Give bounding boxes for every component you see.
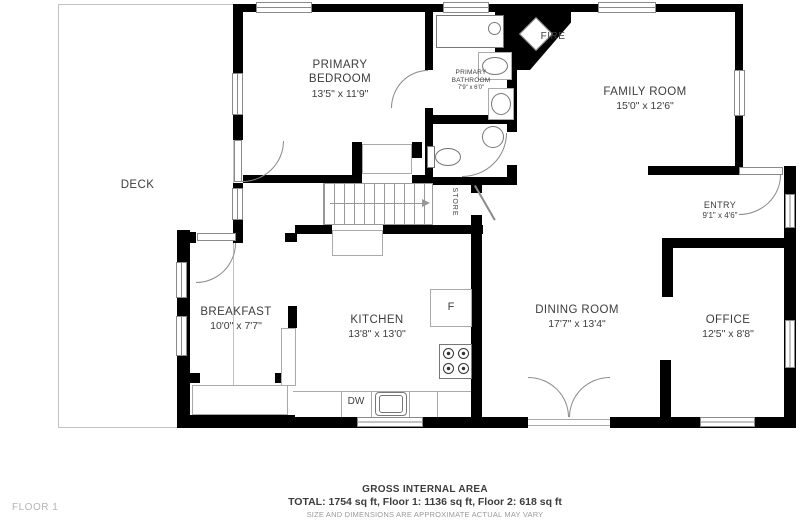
room-dims: 10'0" x 7'7" bbox=[186, 320, 286, 333]
room-name: PRIMARY BEDROOM bbox=[290, 58, 390, 87]
room-dims: 13'5" x 11'9" bbox=[290, 88, 390, 101]
gross-internal-area-title: GROSS INTERNAL AREA bbox=[80, 484, 770, 495]
stair-arrow-icon bbox=[422, 199, 430, 207]
room-name: ENTRY bbox=[680, 200, 760, 211]
window bbox=[734, 70, 745, 116]
room-name: KITCHEN bbox=[327, 313, 427, 327]
room-label-dining-room: DINING ROOM 17'7" x 13'4" bbox=[517, 303, 637, 332]
room-name: OFFICE bbox=[678, 313, 778, 327]
powder-sink bbox=[482, 126, 504, 148]
room-name: DINING ROOM bbox=[517, 303, 637, 317]
under-stair-cupboard bbox=[332, 230, 383, 256]
room-label-entry: ENTRY 9'1" x 4'6" bbox=[680, 200, 760, 221]
counter-divider bbox=[437, 391, 438, 417]
room-label-kitchen: KITCHEN 13'8" x 13'0" bbox=[327, 313, 427, 342]
burner-icon bbox=[443, 363, 454, 374]
wall-bathroom-left-upper bbox=[425, 12, 433, 70]
wall-bedroom-left-upper bbox=[233, 4, 243, 140]
room-label-breakfast: BREAKFAST 10'0" x 7'7" bbox=[186, 305, 286, 334]
wall-breakfast-top-left bbox=[177, 232, 196, 243]
wall-step-stub bbox=[285, 233, 297, 242]
room-name: DECK bbox=[100, 178, 175, 192]
room-name: BREAKFAST bbox=[186, 305, 286, 319]
door-arc-french-right bbox=[569, 377, 610, 417]
wall-kitchen-breakfast-stub bbox=[288, 306, 297, 328]
fridge-label: F bbox=[431, 301, 471, 315]
staircase bbox=[323, 183, 433, 225]
room-name: FAMILY ROOM bbox=[585, 85, 705, 99]
kitchen-sink-basin bbox=[379, 395, 403, 413]
wall-entry-top bbox=[648, 166, 743, 175]
room-label-office: OFFICE 12'5" x 8'8" bbox=[678, 313, 778, 342]
wall-bay-stub-left bbox=[186, 373, 200, 383]
footer: GROSS INTERNAL AREA TOTAL: 1754 sq ft, F… bbox=[80, 484, 770, 519]
window bbox=[785, 194, 795, 228]
toilet-bowl bbox=[435, 148, 461, 166]
wall-kitchen-right bbox=[471, 215, 482, 428]
door-arc-french-left bbox=[528, 377, 569, 417]
burner-icon bbox=[458, 348, 469, 359]
door-arc-bathroom bbox=[391, 70, 428, 108]
fireplace-label: FIRE bbox=[531, 31, 575, 44]
window bbox=[232, 188, 243, 220]
counter-divider bbox=[409, 391, 410, 417]
deck-outline bbox=[58, 4, 234, 428]
store-label: STORE bbox=[446, 184, 458, 220]
door-leaf-breakfast bbox=[197, 233, 236, 241]
bathroom-sink bbox=[491, 93, 511, 115]
floor-label: FLOOR 1 bbox=[12, 502, 58, 513]
window bbox=[785, 320, 795, 368]
door-leaf-bedroom-deck bbox=[234, 140, 242, 182]
kitchen-peninsula bbox=[281, 328, 296, 386]
wall-office-left-upper bbox=[662, 248, 673, 297]
toilet-tank bbox=[427, 146, 435, 168]
window bbox=[598, 2, 656, 13]
wall-stairs-bottom-left bbox=[295, 225, 332, 234]
floor-plan: F DECK PRIMARY BEDROOM 13'5" x 11'9" PRI… bbox=[0, 0, 800, 527]
area-totals: TOTAL: 1754 sq ft, Floor 1: 1136 sq ft, … bbox=[80, 496, 770, 508]
wall-dining-bottom-right bbox=[610, 417, 640, 428]
room-label-primary-bathroom: PRIMARY BATHROOM 7'9" x 6'0" bbox=[438, 69, 504, 93]
french-door-threshold bbox=[528, 425, 610, 426]
window bbox=[700, 417, 755, 427]
room-dims: 12'5" x 8'8" bbox=[678, 328, 778, 341]
burner-icon bbox=[443, 348, 454, 359]
room-name: PRIMARY BATHROOM bbox=[438, 69, 504, 85]
wall-dining-bottom-left bbox=[483, 417, 528, 428]
stair-direction-line bbox=[330, 203, 424, 204]
wall-closet-left bbox=[352, 142, 362, 183]
room-label-family-room: FAMILY ROOM 15'0" x 12'6" bbox=[585, 85, 705, 114]
bay-window-seat bbox=[192, 385, 288, 415]
wall-entry-bottom bbox=[662, 238, 796, 248]
counter-divider bbox=[371, 391, 372, 417]
window bbox=[256, 2, 312, 13]
room-dims: 13'8" x 13'0" bbox=[327, 328, 427, 341]
room-dims: 15'0" x 12'6" bbox=[585, 100, 705, 113]
burner-icon bbox=[458, 363, 469, 374]
wall-powder-right bbox=[507, 165, 517, 185]
window bbox=[443, 2, 489, 13]
room-label-primary-bedroom: PRIMARY BEDROOM 13'5" x 11'9" bbox=[290, 58, 390, 101]
counter-divider bbox=[341, 391, 342, 417]
wall-stairs-bottom-right bbox=[383, 225, 483, 234]
room-dims: 17'7" x 13'4" bbox=[517, 318, 637, 331]
bedroom-closet bbox=[362, 144, 412, 174]
dishwasher-label: DW bbox=[343, 396, 369, 409]
window bbox=[357, 417, 423, 427]
wall-closet-right bbox=[412, 142, 422, 158]
window bbox=[176, 262, 187, 298]
room-label-deck: DECK bbox=[100, 178, 175, 192]
fridge: F bbox=[430, 289, 472, 327]
door-leaf-front bbox=[739, 167, 783, 175]
room-dims: 7'9" x 6'0" bbox=[438, 85, 504, 93]
disclaimer: SIZE AND DIMENSIONS ARE APPROXIMATE ACTU… bbox=[80, 510, 770, 519]
wall-office-left-lower bbox=[660, 360, 671, 417]
room-dims: 9'1" x 4'6" bbox=[680, 211, 760, 221]
french-door-threshold bbox=[528, 419, 610, 420]
wall-breakfast-bottom bbox=[177, 415, 295, 428]
window bbox=[232, 73, 243, 115]
wall-powder-bottom bbox=[425, 177, 515, 185]
shower-head-icon bbox=[488, 22, 501, 35]
